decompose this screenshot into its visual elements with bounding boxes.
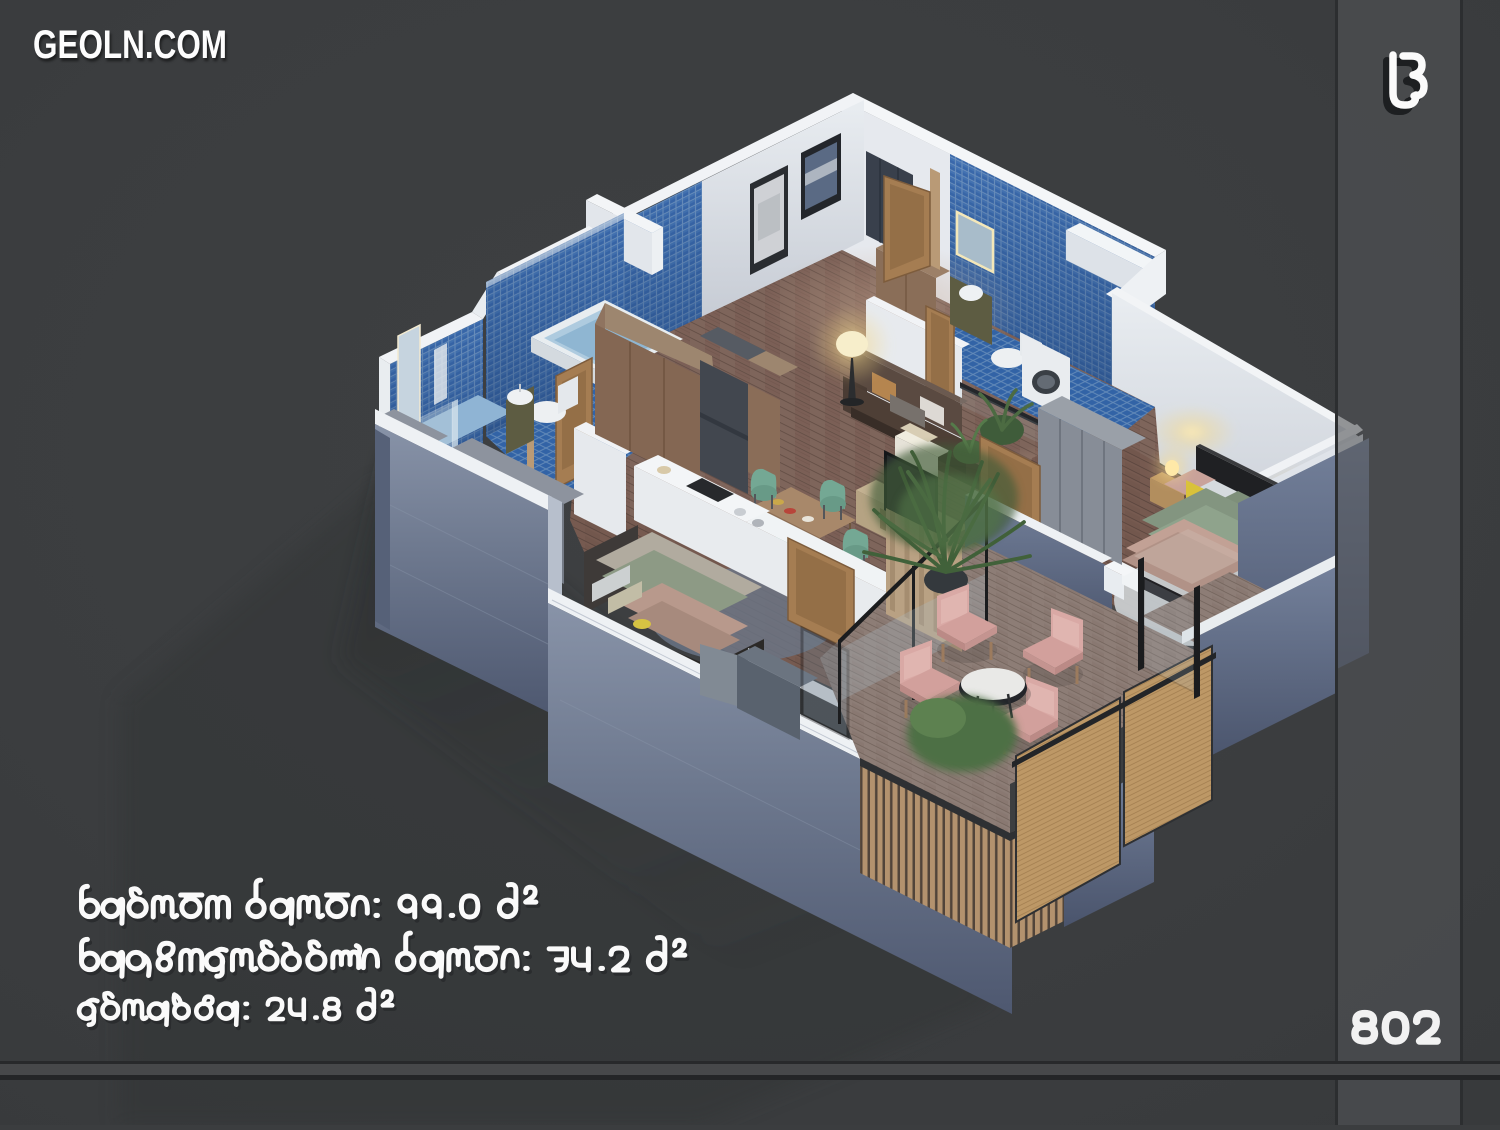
svg-text:GEOLN.COM: GEOLN.COM bbox=[33, 23, 227, 67]
